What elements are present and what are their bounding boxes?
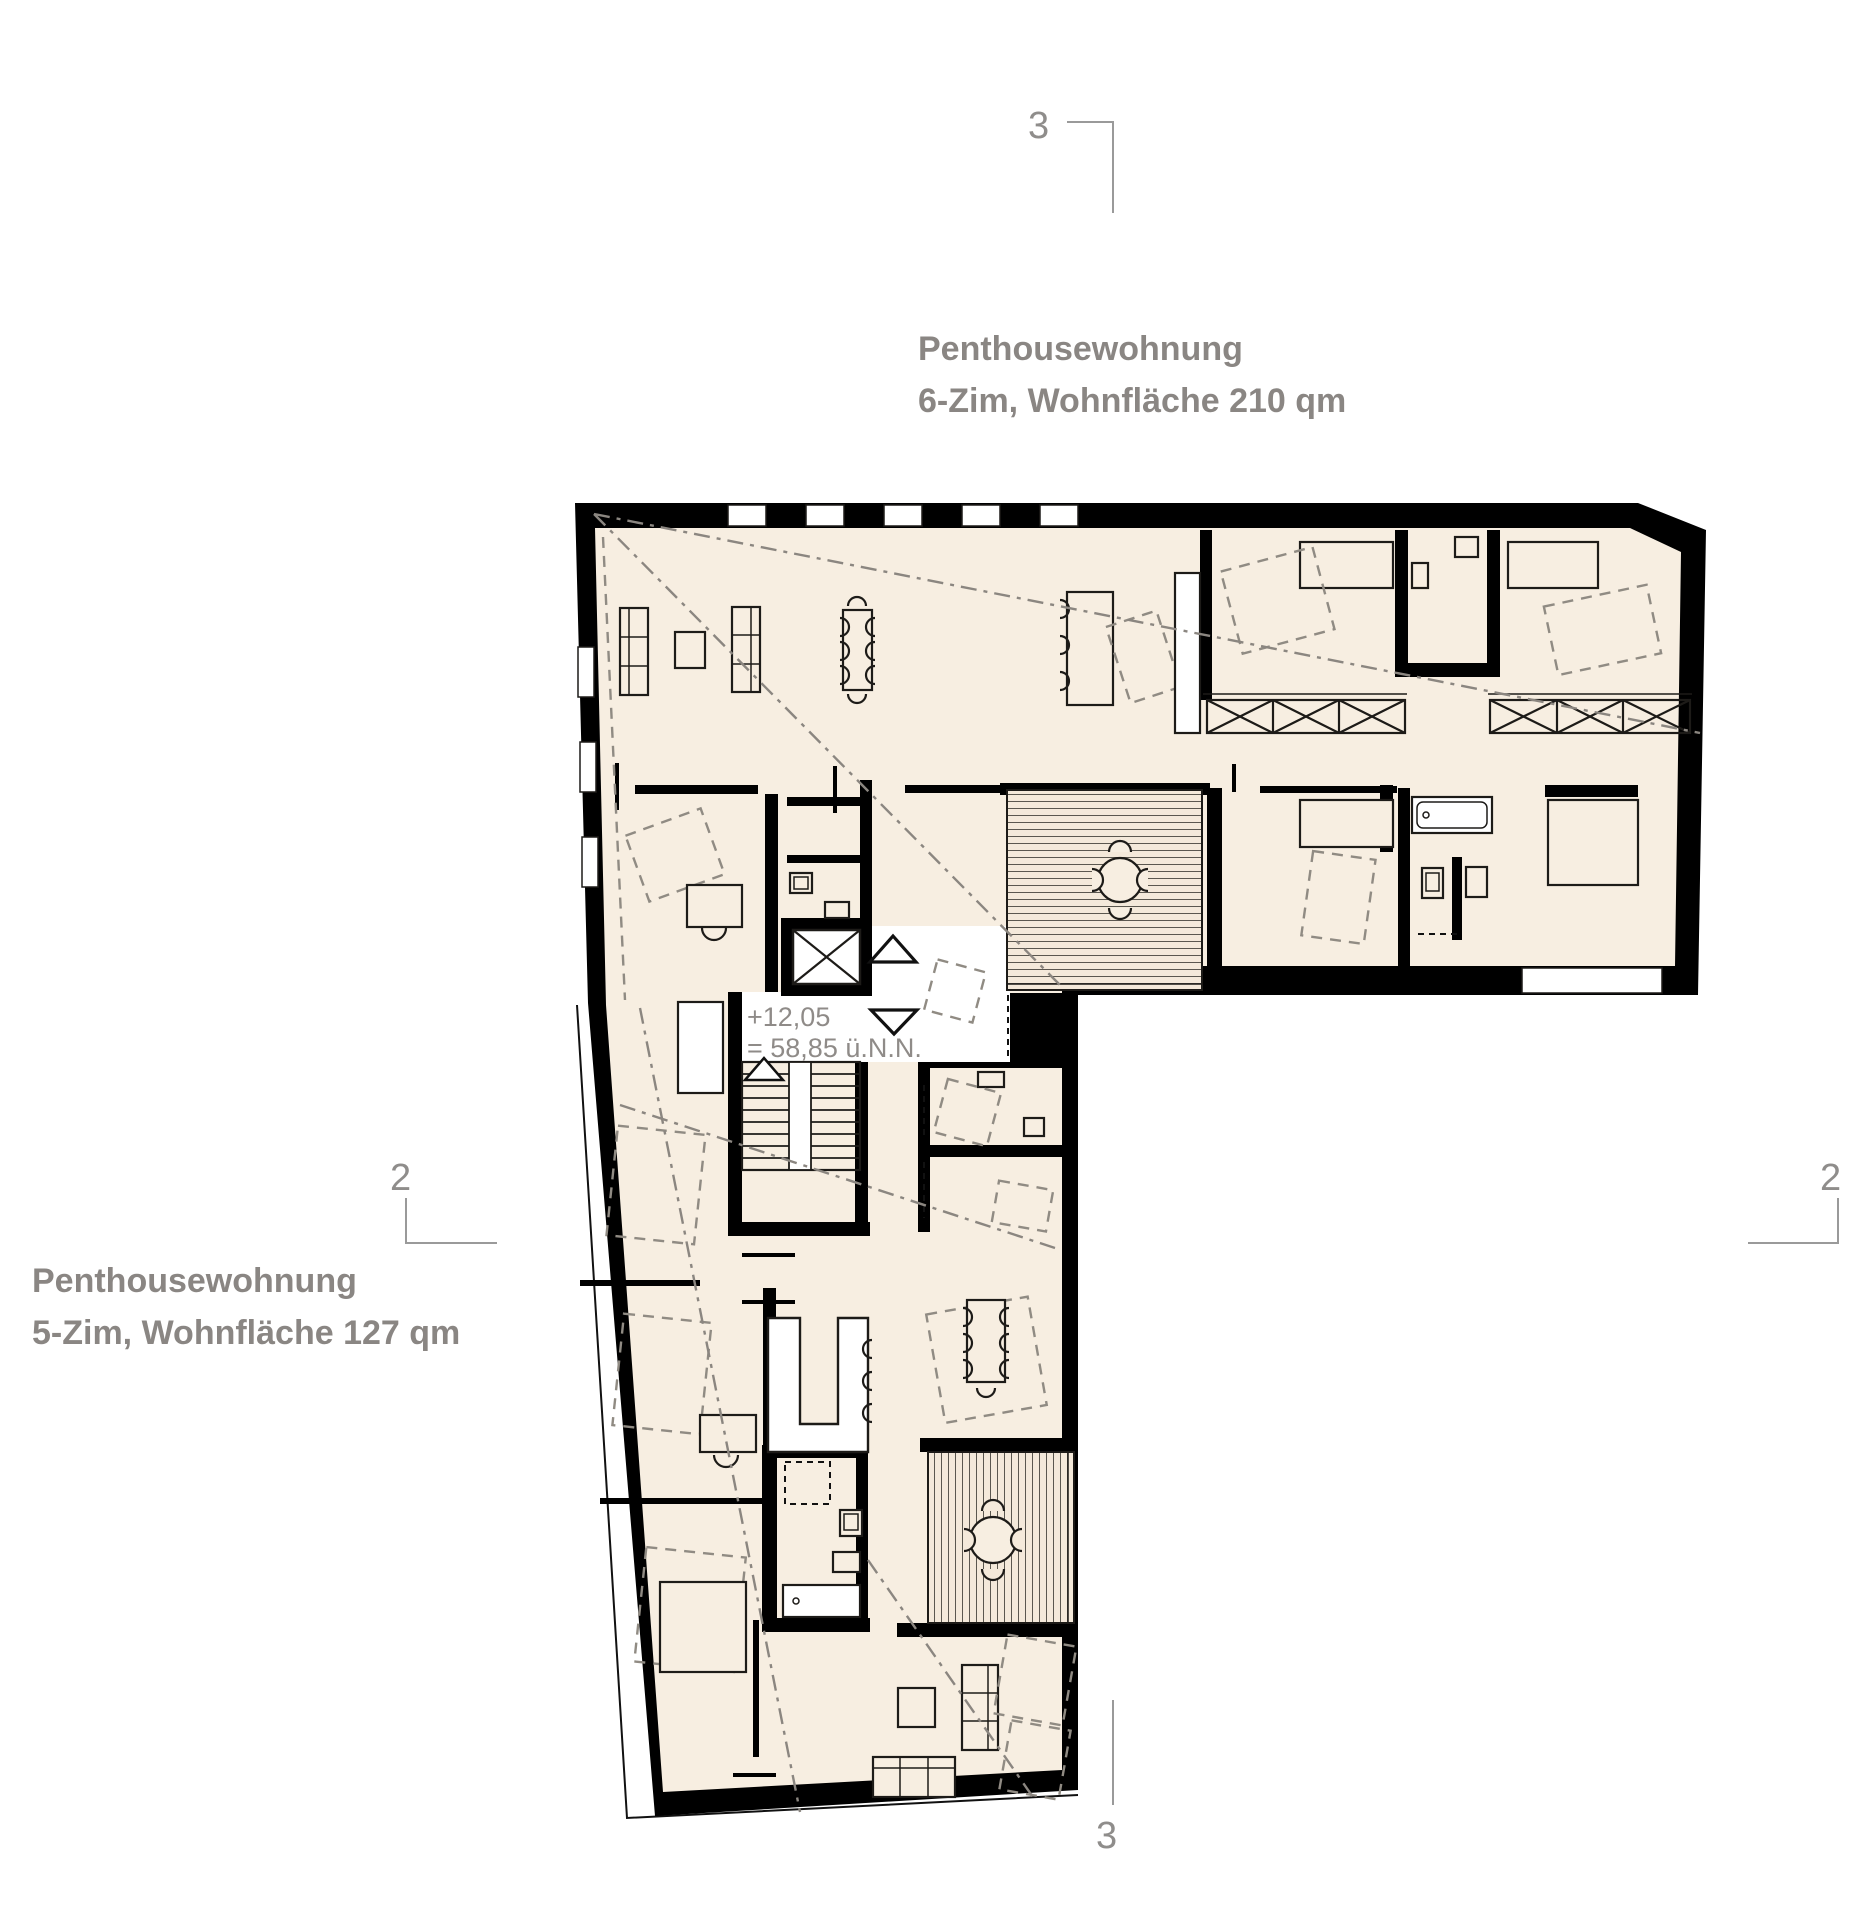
apartment-lower-label-line1: Penthousewohnung xyxy=(32,1262,357,1300)
kitchen-counter xyxy=(1175,573,1200,733)
sofa-right xyxy=(732,607,760,692)
bathtub-lower xyxy=(783,1585,860,1617)
window-bottom-right xyxy=(1522,968,1662,993)
wall-closet-bed2 xyxy=(1487,530,1500,663)
wall-rooms-divider xyxy=(930,1145,1062,1157)
apartment-upper-label-line1: Penthousewohnung xyxy=(918,330,1243,368)
section-line-right xyxy=(1748,1198,1838,1243)
section-number-top: 3 xyxy=(1028,105,1049,147)
wall-core-right xyxy=(860,780,872,918)
elevation-label-line1: +12,05 xyxy=(747,1002,830,1032)
window-top-2 xyxy=(806,505,844,526)
sink-upper xyxy=(1466,867,1487,897)
stair-stringer xyxy=(789,1062,811,1170)
window-top-5 xyxy=(1040,505,1078,526)
wall-bed1-closet xyxy=(1395,530,1408,663)
wall-corridor xyxy=(905,785,1000,793)
bed-mid2 xyxy=(1300,800,1393,847)
coffee-table xyxy=(675,632,705,668)
wall-kitchen-bed1 xyxy=(1200,530,1212,700)
wall-bath2-bottom xyxy=(762,1618,870,1632)
section-line-left xyxy=(406,1198,497,1243)
wall-core-top xyxy=(787,797,872,806)
wall-bed3-living xyxy=(753,1620,759,1757)
window-left-3 xyxy=(582,837,598,887)
threshold-3 xyxy=(733,1773,776,1777)
jamb-tick-2 xyxy=(833,766,837,813)
jamb-tick-3 xyxy=(1232,764,1236,792)
apartment-lower-label-line2: 5-Zim, Wohnfläche 127 qm xyxy=(32,1314,460,1352)
floorplan-canvas: 3 3 2 2 Penthousewohnung 6-Zim, Wohnfläc… xyxy=(0,0,1871,1920)
elevator xyxy=(781,918,872,996)
wall-terrace1-right xyxy=(1207,788,1222,975)
sofa-horizontal xyxy=(873,1757,955,1797)
closet-fixture-1 xyxy=(1412,563,1428,588)
wall-bath1-partition xyxy=(1452,857,1462,940)
window-left-2 xyxy=(580,742,596,792)
section-number-right: 2 xyxy=(1820,1157,1841,1199)
section-number-bottom: 3 xyxy=(1096,1815,1117,1857)
window-left-1 xyxy=(578,647,594,697)
sofa-left xyxy=(620,608,648,695)
sink-lower xyxy=(833,1552,860,1572)
terrace-upper xyxy=(1007,790,1202,990)
wc-sink xyxy=(825,902,849,918)
terrace-upper-table xyxy=(1098,858,1142,902)
wall-bed2-bed3 xyxy=(600,1498,770,1504)
bed-right xyxy=(1508,542,1598,588)
wall-terrace2-bottom xyxy=(897,1623,1062,1637)
section-line-top xyxy=(1067,122,1113,213)
office-desk xyxy=(687,885,742,927)
apartment-upper-label-line2: 6-Zim, Wohnfläche 210 qm xyxy=(918,382,1346,420)
wall-bedmid2-top xyxy=(1260,786,1397,793)
wall-closet-bottom xyxy=(1395,663,1500,677)
terrace-lower xyxy=(928,1452,1074,1623)
wall-office-top xyxy=(635,785,758,794)
wardrobe-tall xyxy=(678,1002,723,1093)
wall-core-bottom xyxy=(728,1222,870,1236)
wall-bed1-bed2 xyxy=(580,1280,700,1286)
terrace-lower-table xyxy=(970,1517,1016,1563)
window-top-3 xyxy=(884,505,922,526)
window-top-1 xyxy=(728,505,766,526)
wall-core-left xyxy=(728,992,742,1236)
floor-area xyxy=(595,528,1681,1792)
bed3 xyxy=(660,1582,746,1672)
wall-office-right xyxy=(765,794,778,992)
wall-terrace2-top xyxy=(920,1438,1065,1452)
room-fixture-1 xyxy=(978,1072,1004,1087)
elevation-label-line2: = 58,85 ü.N.N. xyxy=(747,1033,922,1063)
window-top-4 xyxy=(962,505,1000,526)
wall-bath2-left xyxy=(762,1458,777,1632)
section-number-left: 2 xyxy=(390,1157,411,1199)
floorplan-drawing: 3 3 2 2 Penthousewohnung 6-Zim, Wohnfläc… xyxy=(0,0,1871,1920)
threshold-1 xyxy=(742,1253,795,1257)
threshold-2 xyxy=(742,1300,795,1304)
closet-fixture-2 xyxy=(1455,537,1478,557)
room-fixture-2 xyxy=(1024,1118,1044,1136)
dining-group-upper xyxy=(840,597,875,703)
coffee-table-lower xyxy=(898,1688,935,1727)
wall-rightroom-top xyxy=(1545,785,1638,797)
wall-bath1-left xyxy=(1398,788,1410,973)
wall-wc-divider xyxy=(787,855,870,863)
shower-square xyxy=(1548,800,1638,885)
